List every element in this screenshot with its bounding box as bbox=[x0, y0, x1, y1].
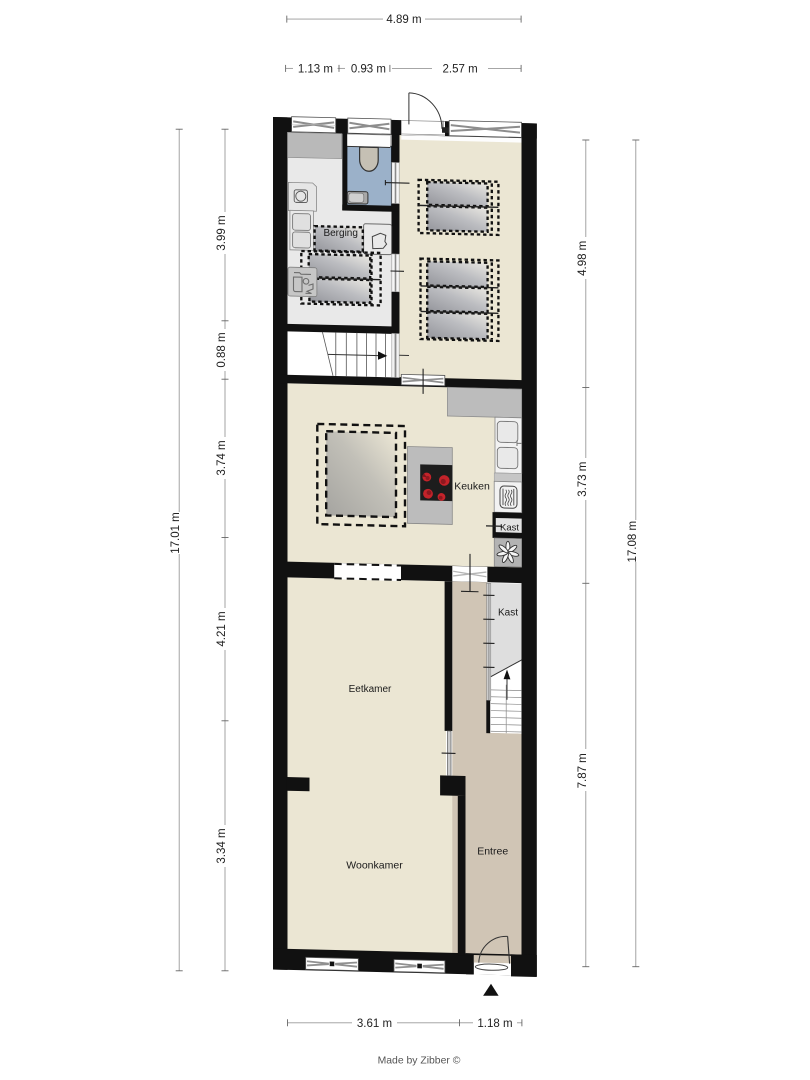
svg-text:4.98 m: 4.98 m bbox=[577, 241, 589, 276]
svg-text:Kast: Kast bbox=[500, 523, 519, 534]
svg-text:3.99 m: 3.99 m bbox=[216, 215, 228, 250]
svg-text:3.61 m: 3.61 m bbox=[357, 1018, 392, 1030]
svg-text:Entree: Entree bbox=[477, 846, 508, 858]
svg-text:1.18 m: 1.18 m bbox=[477, 1018, 512, 1030]
svg-text:4.21 m: 4.21 m bbox=[216, 611, 228, 646]
svg-text:3.73 m: 3.73 m bbox=[577, 462, 589, 497]
svg-text:0.88 m: 0.88 m bbox=[216, 332, 228, 367]
svg-text:Made by Zibber ©: Made by Zibber © bbox=[378, 1056, 461, 1067]
svg-text:Woonkamer: Woonkamer bbox=[346, 860, 403, 872]
svg-text:3.74 m: 3.74 m bbox=[216, 440, 228, 475]
svg-text:1.13 m: 1.13 m bbox=[298, 64, 333, 76]
svg-text:17.01 m: 17.01 m bbox=[170, 512, 182, 554]
svg-text:7.87 m: 7.87 m bbox=[577, 753, 589, 788]
svg-text:2.57 m: 2.57 m bbox=[443, 64, 478, 76]
svg-text:17.08 m: 17.08 m bbox=[627, 521, 639, 563]
svg-text:3.34 m: 3.34 m bbox=[216, 828, 228, 863]
svg-text:0.93 m: 0.93 m bbox=[351, 64, 386, 76]
svg-text:Keuken: Keuken bbox=[454, 481, 490, 493]
svg-text:4.89 m: 4.89 m bbox=[386, 14, 421, 26]
svg-text:Kast: Kast bbox=[498, 608, 518, 619]
svg-text:Eetkamer: Eetkamer bbox=[349, 684, 392, 695]
svg-text:Berging: Berging bbox=[323, 228, 357, 239]
